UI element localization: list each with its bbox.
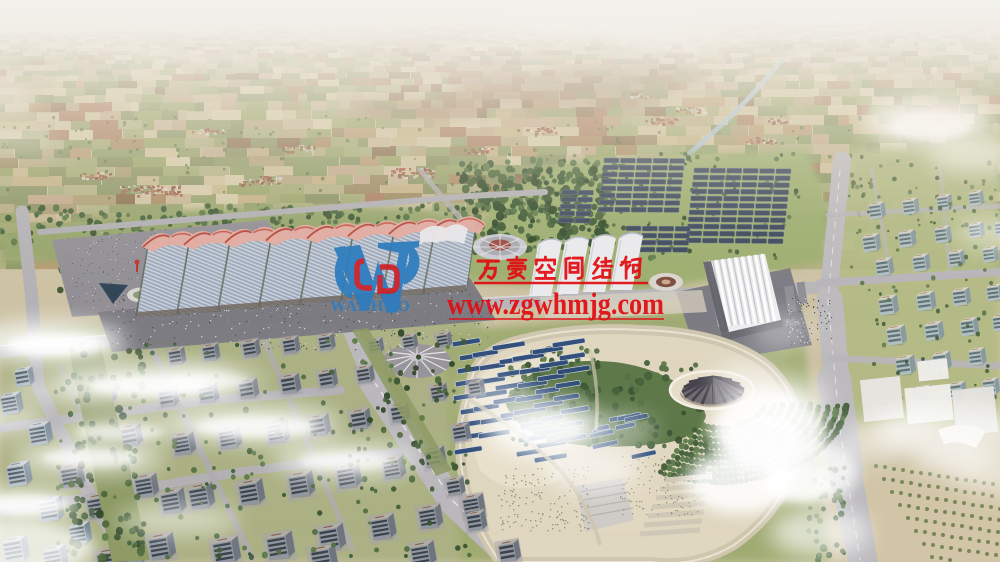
- svg-text:www.zgwhmjg.com: www.zgwhmjg.com: [447, 286, 664, 321]
- svg-text:WANHAO: WANHAO: [330, 298, 411, 315]
